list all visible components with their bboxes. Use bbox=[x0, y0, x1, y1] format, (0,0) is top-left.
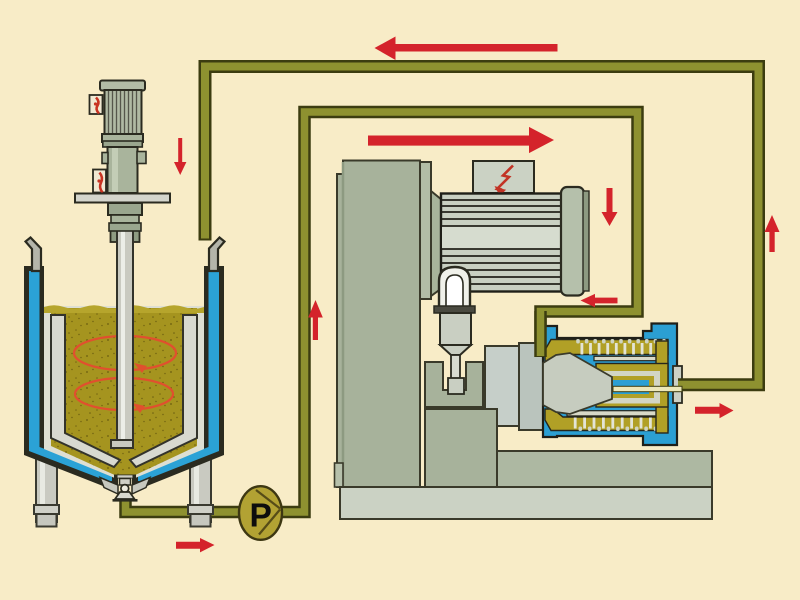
svg-text:P: P bbox=[250, 498, 272, 535]
